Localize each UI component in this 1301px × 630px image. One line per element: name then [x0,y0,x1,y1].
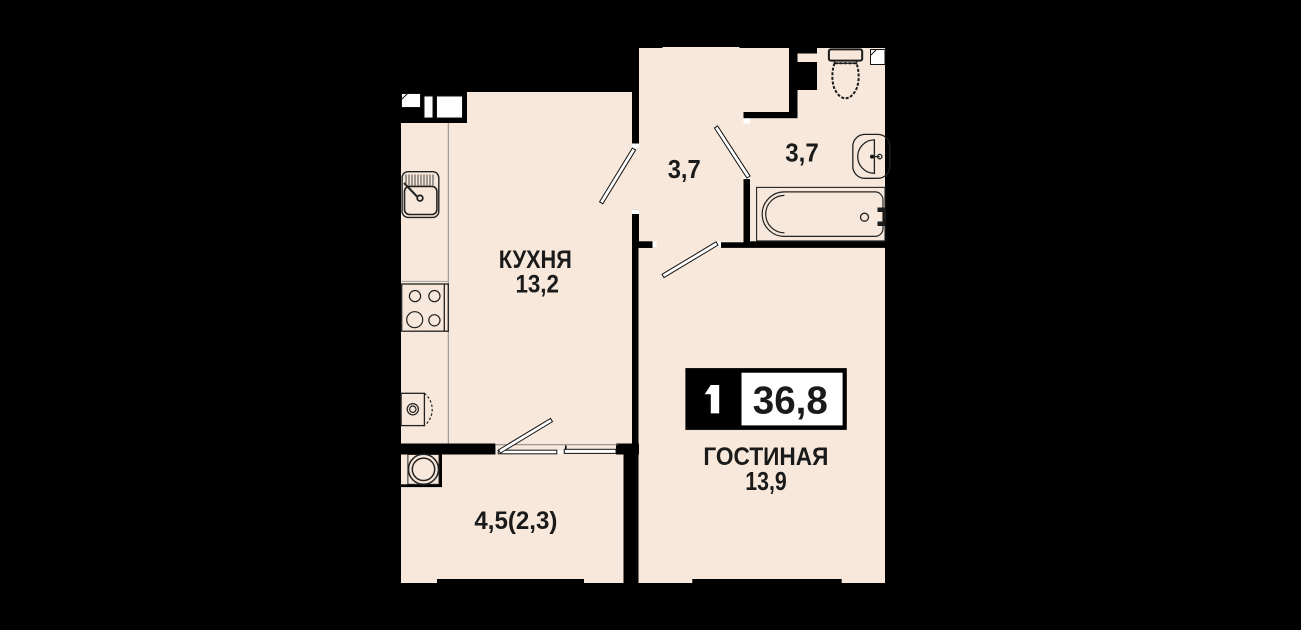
svg-text:4,5(2,3): 4,5(2,3) [474,507,557,535]
svg-text:3,7: 3,7 [668,154,701,184]
svg-text:13,9: 13,9 [745,466,787,496]
svg-text:36,8: 36,8 [753,379,828,422]
svg-text:13,2: 13,2 [515,270,559,298]
svg-text:3,7: 3,7 [785,139,819,167]
